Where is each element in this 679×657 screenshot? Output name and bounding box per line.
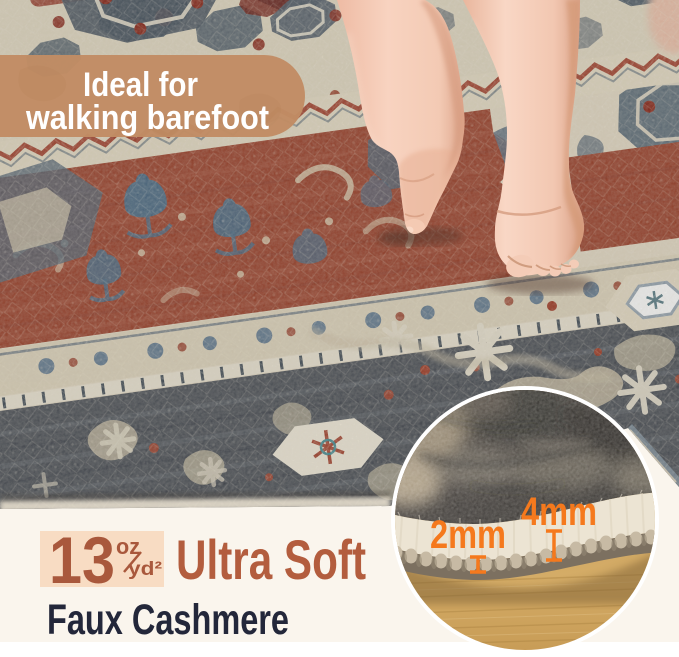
- svg-text:2mm: 2mm: [430, 513, 506, 557]
- svg-text:walking barefoot: walking barefoot: [25, 99, 269, 137]
- svg-text:oz: oz: [116, 534, 140, 559]
- svg-text:Faux Cashmere: Faux Cashmere: [47, 596, 289, 644]
- svg-text:Ultra Soft: Ultra Soft: [176, 528, 366, 591]
- svg-text:4mm: 4mm: [521, 490, 597, 534]
- svg-text:yd²: yd²: [128, 559, 162, 580]
- svg-text:13: 13: [49, 523, 115, 597]
